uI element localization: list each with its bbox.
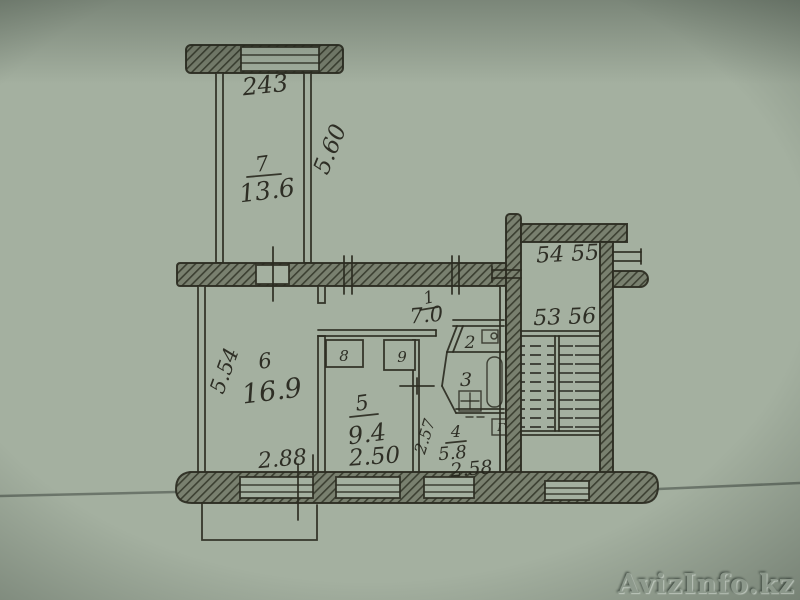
room7-left-wall	[216, 73, 223, 263]
paper-crease	[0, 492, 176, 496]
room6-area: 16.9	[240, 373, 303, 411]
stairwell-right-wall	[600, 242, 613, 480]
window-room5	[336, 477, 400, 498]
closet9-number: 9	[397, 348, 407, 366]
kitchen-width-label: 2.58	[448, 456, 493, 482]
toilet-fixture-bowl	[491, 333, 497, 339]
closet8-number: 8	[339, 347, 349, 365]
paper-crease	[658, 483, 800, 489]
room7-number: 7	[254, 151, 271, 177]
hall-area: 7.0	[409, 302, 444, 329]
flat-numbers-upper: 54 55	[536, 240, 600, 268]
bathroom	[442, 352, 504, 417]
stairwell-top-wall	[521, 224, 627, 242]
room6-number: 6	[257, 348, 274, 374]
balcony-window-opening	[241, 47, 319, 71]
balcony	[186, 45, 343, 73]
room5-width-label: 2.50	[347, 442, 401, 472]
watermark: AvizInfo.kz	[618, 569, 795, 600]
window-room6	[240, 477, 313, 498]
stair-flight-down	[559, 338, 600, 431]
kitchen-number: 4	[450, 422, 461, 441]
toilet-number: 2	[464, 333, 476, 353]
floor-plan-photo: 243 5.60 7 13.6 5.54 6 16.9 2.88 8 9 1 7…	[0, 0, 800, 600]
room6-hall-wall-upper	[318, 286, 325, 303]
bath-number: 3	[460, 369, 472, 391]
balcony-width-label: 243	[240, 69, 289, 102]
window-stairwell	[545, 481, 589, 500]
toilet-fixture	[482, 330, 498, 343]
left-outer-wall	[198, 286, 205, 473]
chute-symbol: Г	[496, 421, 505, 434]
flat-numbers-lower: 53 56	[533, 304, 597, 331]
stairwell-left-wall	[506, 214, 521, 480]
floor-plan-drawing: 243 5.60 7 13.6 5.54 6 16.9 2.88 8 9 1 7…	[0, 0, 800, 600]
left-height-label: 5.54	[205, 345, 244, 397]
upper-main-wall	[177, 247, 508, 301]
room7-area: 13.6	[238, 173, 297, 209]
outer-wall-stub	[613, 271, 648, 287]
room6-room5-wall	[318, 336, 325, 473]
room7-height-label: 5.60	[309, 121, 352, 178]
toilet-room	[447, 320, 504, 352]
entrance-porch	[202, 503, 317, 540]
room6-window-label: 2.88	[256, 445, 308, 474]
room5-number: 5	[354, 390, 371, 416]
stair-flight-up	[521, 338, 554, 431]
